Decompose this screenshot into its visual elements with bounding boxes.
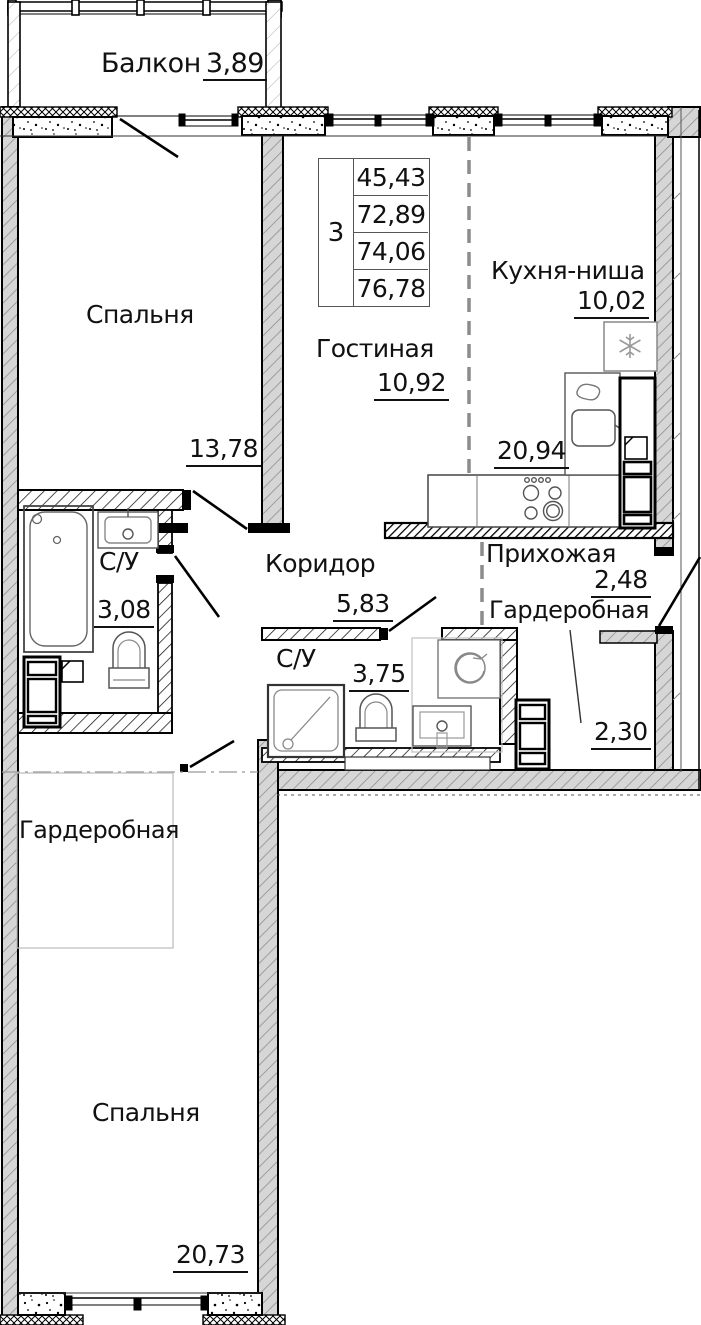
toilet-center-icon: [356, 694, 396, 741]
hallway-area: 2,48: [591, 567, 651, 592]
sink-center-icon: [413, 706, 471, 748]
area-value: 45,43: [354, 159, 428, 196]
bottom-bedroom-window: [65, 1296, 208, 1310]
entrance-door-leaf: [659, 557, 700, 626]
bedroom-living-wall: [262, 114, 283, 530]
leader-lines: [570, 630, 581, 723]
balcony-door-window: [112, 114, 238, 126]
balcony-right-wall: [266, 2, 281, 108]
balcony-railing: [8, 2, 282, 11]
toilet-left-icon: [109, 632, 149, 688]
kitchen-living-total-area: 20,94: [494, 438, 569, 463]
living-room-label: Гостиная: [316, 336, 434, 361]
kitchen-fixtures: [428, 322, 657, 528]
vent-left-icon: [62, 661, 83, 682]
living-room-window: [325, 114, 434, 126]
bedroom-top-area: 13,78: [186, 436, 261, 461]
kitchen-label: Кухня-ниша: [491, 258, 645, 283]
wardrobe-left-door-leaf: [190, 741, 234, 767]
wardrobe-hall-area: 2,30: [591, 719, 651, 744]
bathroom-left-door-leaf: [175, 556, 219, 617]
area-value: 72,89: [354, 196, 428, 233]
balcony-door-leaf: [120, 119, 178, 157]
right-outer-wall-lower: [655, 631, 673, 772]
bathroom-center-area: 3,75: [349, 661, 409, 686]
balcony-left-wall: [8, 2, 20, 108]
bathroom-left-wall-b: [158, 583, 172, 713]
left-outer-wall: [2, 107, 18, 1325]
bathroom-mid-door-leaf: [389, 597, 436, 631]
top-right-corner: [668, 107, 700, 137]
kitchen-window: [494, 114, 602, 126]
corridor-label: Коридор: [265, 551, 375, 576]
corridor-area: 5,83: [333, 591, 393, 616]
bedroom-bottom-label: Спальня: [92, 1100, 200, 1125]
bedroom-top-label: Спальня: [86, 302, 194, 327]
wardrobe-hall-label: Гардеробная: [489, 598, 649, 622]
wardrobe-left-label: Гардеробная: [19, 818, 179, 842]
bedroom-bathroom-wall: [18, 490, 183, 510]
area-value: 74,06: [354, 233, 428, 270]
wardrobe-left-zone: [17, 773, 173, 948]
shower-icon: [268, 685, 344, 757]
bathroom-mid-top-wall-a: [262, 628, 380, 640]
wardrobe-cabinet: [516, 700, 549, 769]
bathroom-left-label: С/У: [99, 549, 139, 574]
kitchen-area: 10,02: [574, 288, 649, 313]
floor-plan: Балкон3,89 3 45,43 72,89 74,06 76,78 Спа…: [0, 0, 701, 1325]
bedroom-top-door-leaf: [193, 491, 247, 529]
apartment-info-table: 3 45,43 72,89 74,06 76,78: [318, 158, 430, 307]
room-name: Балкон: [101, 50, 201, 77]
bath-bench: [345, 757, 490, 770]
bathroom-left-area: 3,08: [94, 597, 154, 622]
right-wall-lower-section: [258, 740, 278, 1325]
kitchen-sink-counter: [565, 373, 620, 475]
bathtub-icon: [24, 506, 93, 652]
wardrobe-door-lintel: [600, 631, 657, 643]
washing-machine-center-icon: [438, 640, 500, 698]
wardrobe-hall-leader: [570, 630, 581, 723]
kitchen-counter: [428, 475, 620, 527]
rooms-count: 3: [319, 159, 354, 306]
bathroom-center-label: С/У: [276, 646, 316, 671]
bottom-wall-upper-section: [277, 770, 701, 790]
hallway-label: Прихожая: [486, 541, 616, 566]
washing-machine-left: [24, 657, 60, 727]
living-room-area: 10,92: [374, 370, 449, 395]
kitchen-tall-unit: [620, 378, 655, 528]
sink-left-icon: [98, 508, 158, 548]
area-value: 76,78: [354, 270, 428, 306]
balcony-label: Балкон3,89: [101, 50, 267, 81]
bedroom-bottom-area: 20,73: [173, 1242, 248, 1267]
vent-icon: [625, 437, 647, 459]
room-area: 3,89: [203, 50, 267, 81]
